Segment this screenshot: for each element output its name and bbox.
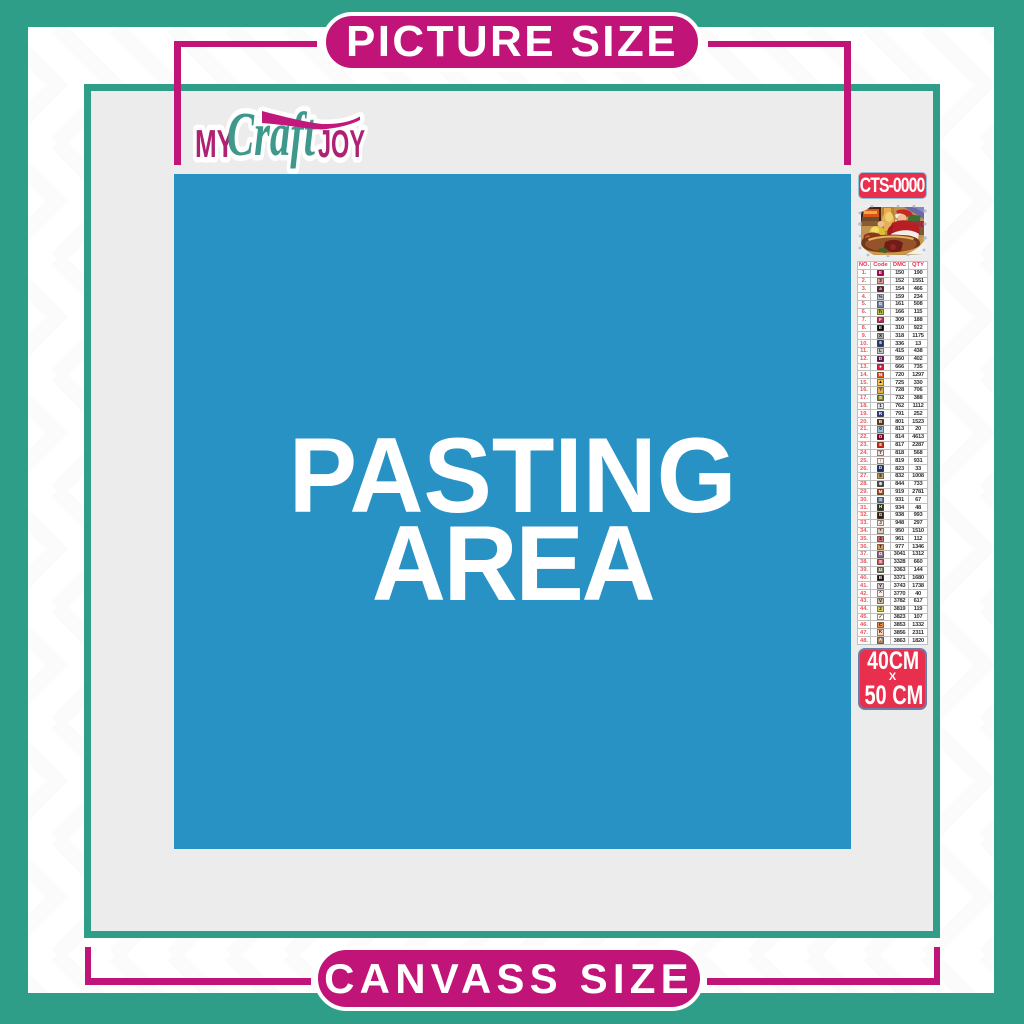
- svg-text:Craft: Craft: [227, 101, 316, 169]
- svg-text:JOY: JOY: [318, 123, 365, 166]
